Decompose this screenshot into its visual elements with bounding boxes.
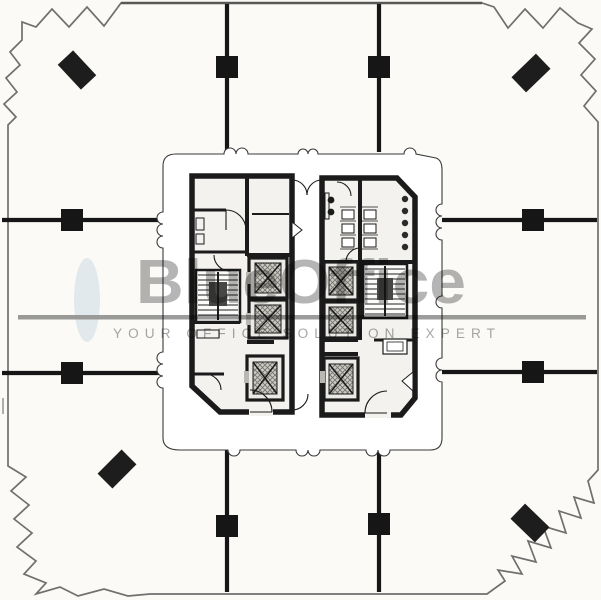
floor-plan-svg: BlueOffice YOUR OFFICE SOLUTION EXPERT bbox=[0, 0, 601, 600]
watermark-brand: BlueOffice bbox=[136, 248, 466, 317]
column-marker bbox=[61, 362, 83, 384]
column-marker bbox=[61, 209, 83, 231]
column-marker bbox=[368, 56, 390, 78]
watermark-ellipse bbox=[74, 258, 100, 342]
floor-plan-page: BlueOffice YOUR OFFICE SOLUTION EXPERT bbox=[0, 0, 601, 600]
toilet bbox=[342, 210, 354, 219]
column-marker bbox=[216, 56, 238, 78]
toilet bbox=[342, 224, 354, 233]
sink bbox=[402, 208, 408, 214]
elevator-door bbox=[244, 371, 249, 383]
elevator-door bbox=[320, 371, 325, 383]
column-marker bbox=[368, 513, 390, 535]
toilet bbox=[364, 224, 376, 233]
toilet bbox=[364, 238, 376, 247]
sink bbox=[402, 232, 408, 238]
sink bbox=[402, 220, 408, 226]
column-marker bbox=[522, 209, 544, 231]
watermark-tagline: YOUR OFFICE SOLUTION EXPERT bbox=[113, 326, 501, 341]
sink bbox=[402, 196, 408, 202]
column-marker bbox=[216, 515, 238, 537]
toilet bbox=[364, 210, 376, 219]
column-marker bbox=[522, 361, 544, 383]
toilet bbox=[342, 238, 354, 247]
